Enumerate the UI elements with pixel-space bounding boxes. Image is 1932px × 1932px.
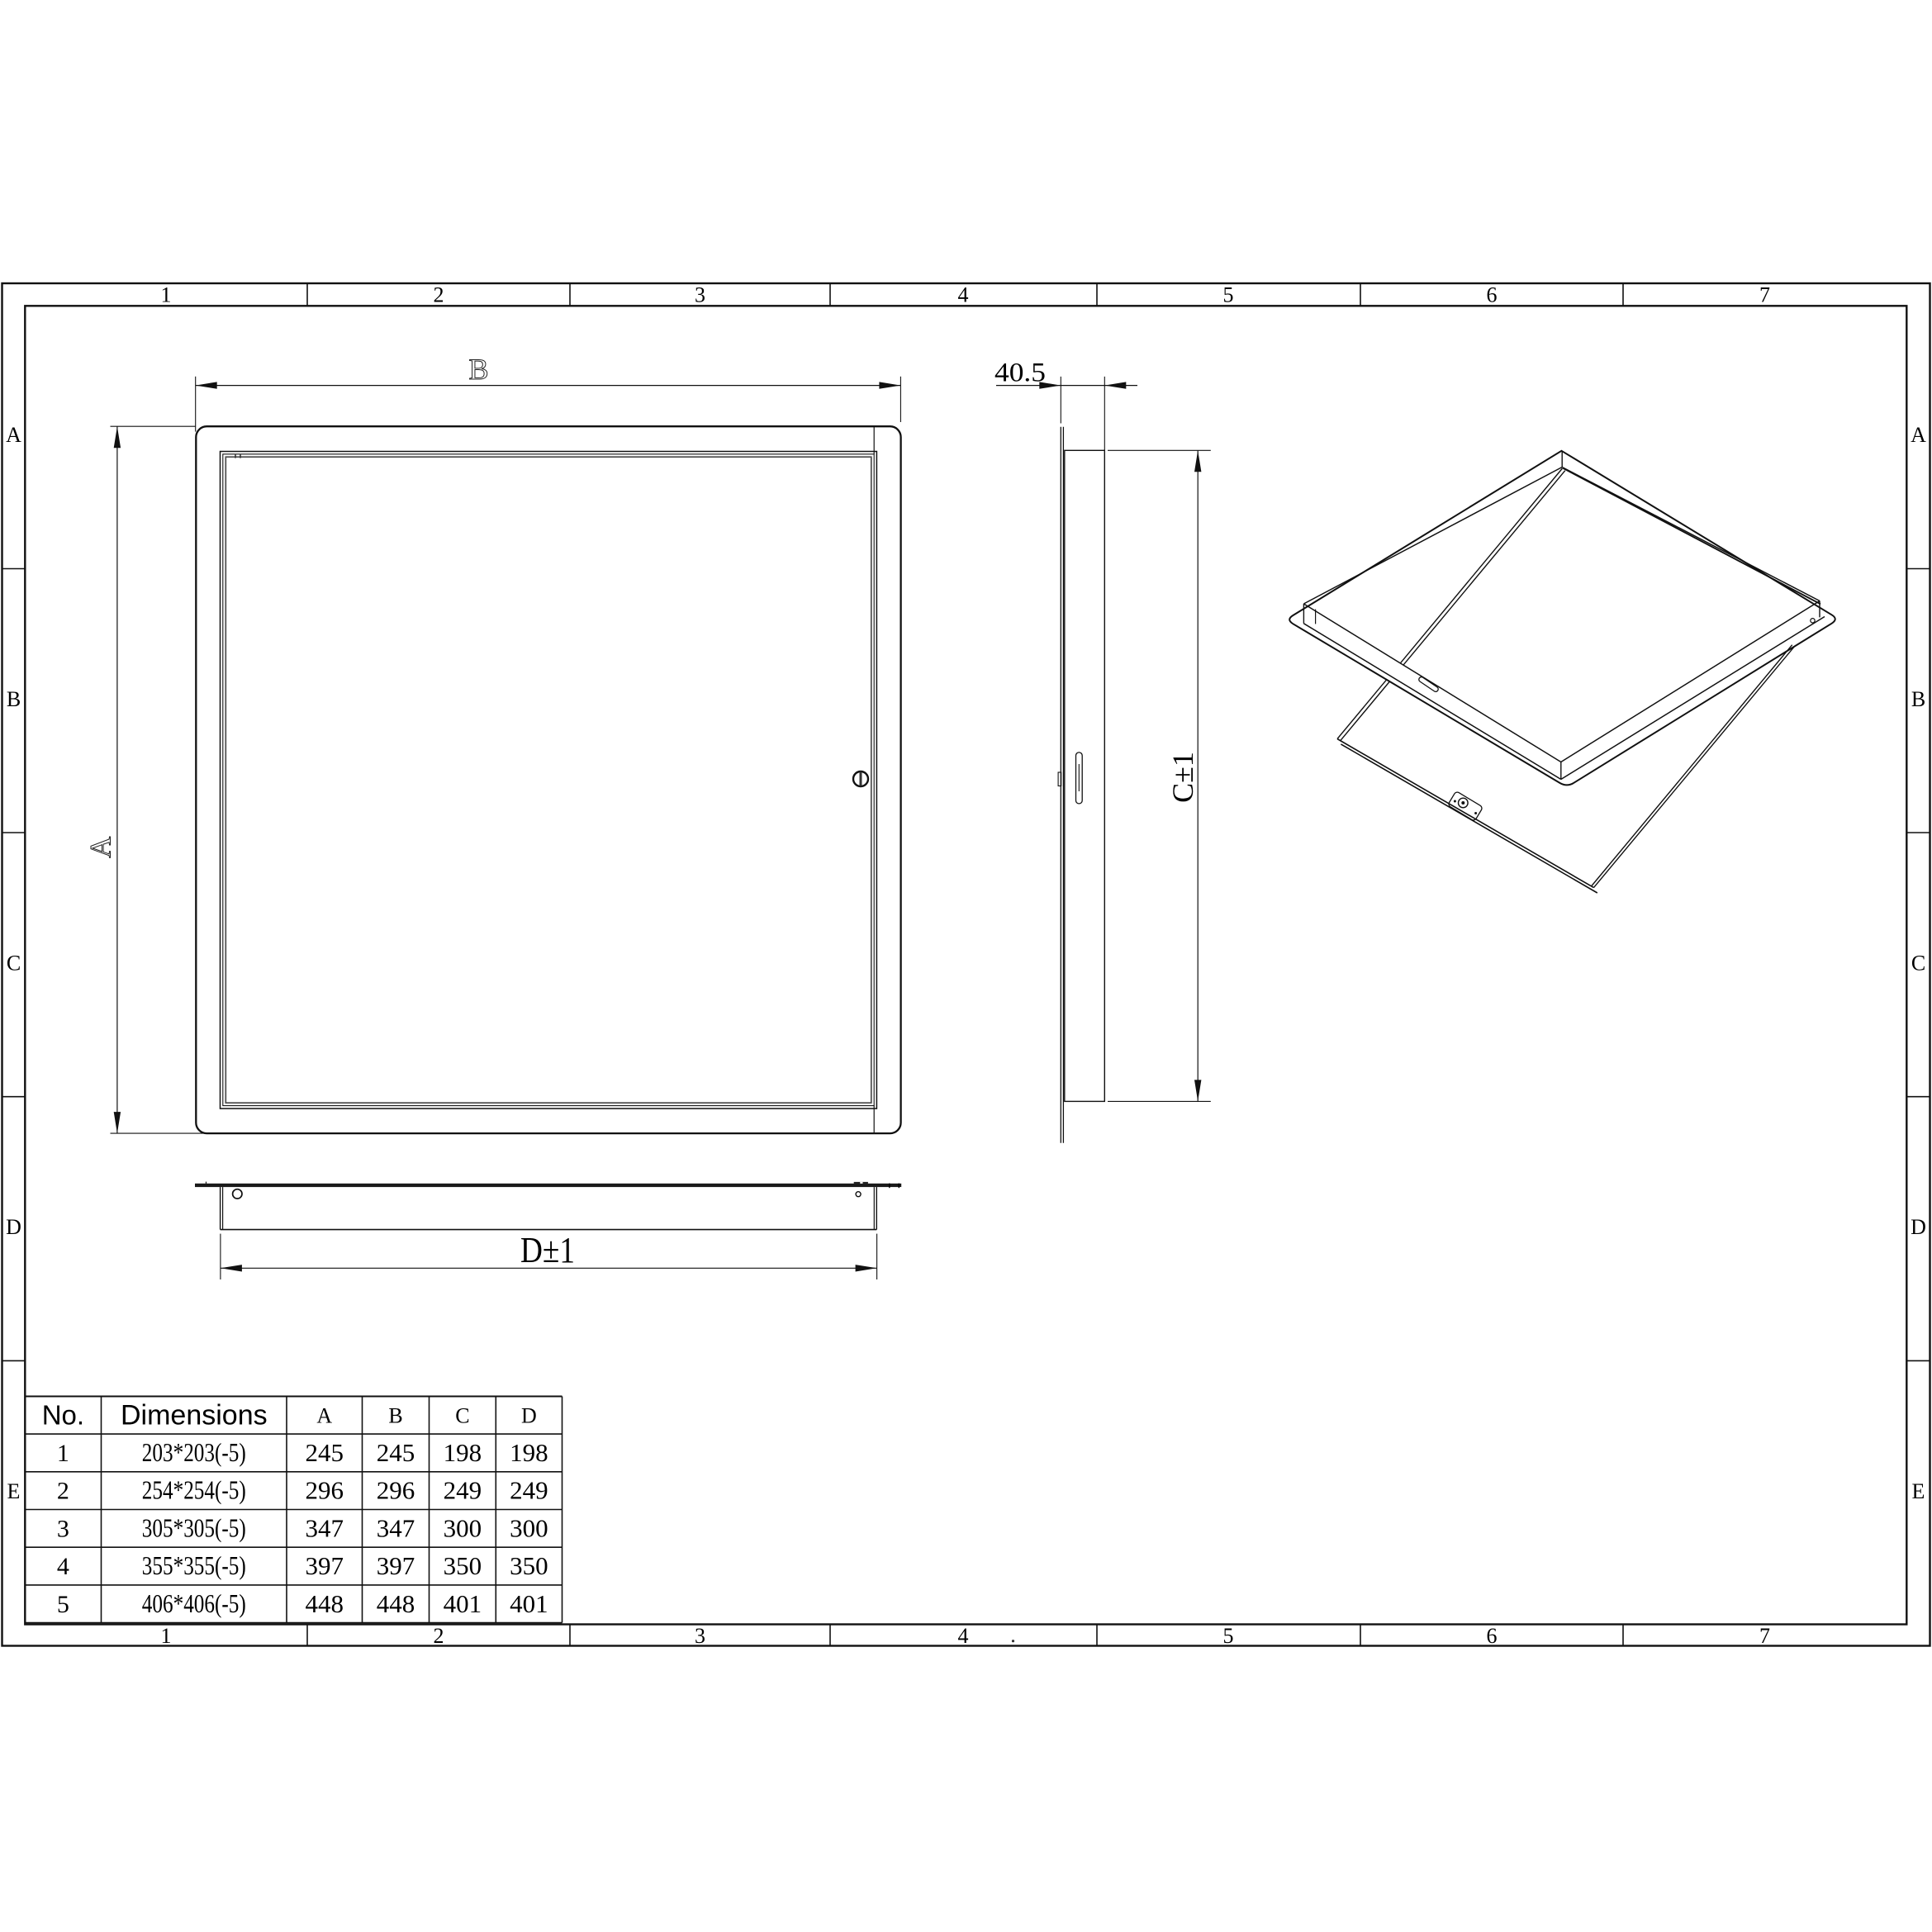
svg-text:6: 6 [1487, 283, 1498, 307]
svg-text:B: B [388, 1403, 402, 1427]
svg-text:A: A [6, 423, 21, 447]
svg-text:E: E [1912, 1479, 1925, 1503]
svg-text:2: 2 [57, 1478, 69, 1505]
svg-text:249: 249 [510, 1476, 548, 1505]
svg-text:350: 350 [444, 1551, 482, 1580]
svg-text:Dimensions: Dimensions [121, 1399, 268, 1431]
svg-text:249: 249 [444, 1476, 482, 1505]
svg-text:D: D [521, 1403, 537, 1427]
svg-text:198: 198 [444, 1438, 482, 1467]
svg-text:5: 5 [1223, 1624, 1234, 1648]
svg-text:D: D [6, 1215, 21, 1239]
svg-text:C: C [1911, 952, 1925, 975]
svg-text:254*254(-5): 254*254(-5) [142, 1475, 246, 1505]
svg-text:E: E [7, 1479, 21, 1503]
svg-text:448: 448 [377, 1589, 415, 1618]
svg-text:D±1: D±1 [520, 1230, 575, 1270]
svg-text:2: 2 [434, 283, 444, 307]
svg-text:203*203(-5): 203*203(-5) [142, 1437, 246, 1467]
svg-text:305*305(-5): 305*305(-5) [142, 1512, 246, 1542]
svg-text:3: 3 [57, 1515, 69, 1542]
svg-text:296: 296 [306, 1476, 344, 1505]
svg-text:245: 245 [306, 1438, 344, 1467]
svg-text:401: 401 [510, 1589, 548, 1618]
svg-text:347: 347 [377, 1513, 415, 1542]
svg-text:350: 350 [510, 1551, 548, 1580]
svg-text:448: 448 [306, 1589, 344, 1618]
svg-text:3: 3 [695, 1624, 705, 1648]
svg-text:A: A [84, 837, 117, 858]
svg-text:A: A [316, 1403, 332, 1427]
svg-text:C±1: C±1 [1166, 752, 1199, 803]
svg-text:2: 2 [434, 1624, 444, 1648]
svg-text:4: 4 [958, 1624, 969, 1648]
svg-text:6: 6 [1487, 1624, 1498, 1648]
svg-text:4: 4 [57, 1553, 69, 1580]
svg-text:7: 7 [1759, 283, 1770, 307]
svg-text:397: 397 [377, 1551, 415, 1580]
svg-text:300: 300 [510, 1513, 548, 1542]
svg-text:C: C [455, 1403, 469, 1427]
svg-text:355*355(-5): 355*355(-5) [142, 1550, 246, 1580]
svg-text:B: B [1911, 687, 1925, 711]
svg-text:1: 1 [161, 283, 172, 307]
svg-text:A: A [1911, 423, 1926, 447]
svg-text:B: B [468, 353, 488, 386]
svg-text:D: D [1911, 1215, 1926, 1239]
svg-text:1: 1 [57, 1440, 69, 1467]
svg-text:397: 397 [306, 1551, 344, 1580]
svg-text:296: 296 [377, 1476, 415, 1505]
svg-text:5: 5 [1223, 283, 1234, 307]
svg-text:1: 1 [161, 1624, 172, 1648]
svg-text:401: 401 [444, 1589, 482, 1618]
svg-text:245: 245 [377, 1438, 415, 1467]
svg-text:C: C [7, 952, 21, 975]
svg-text:3: 3 [695, 283, 705, 307]
svg-text:300: 300 [444, 1513, 482, 1542]
svg-text:198: 198 [510, 1438, 548, 1467]
svg-text:5: 5 [57, 1591, 69, 1618]
svg-text:406*406(-5): 406*406(-5) [142, 1588, 246, 1618]
svg-text:347: 347 [306, 1513, 344, 1542]
svg-text:No.: No. [42, 1399, 84, 1430]
svg-text:4: 4 [958, 283, 969, 307]
svg-text:40.5: 40.5 [994, 358, 1046, 388]
svg-text:7: 7 [1759, 1624, 1770, 1648]
svg-text:B: B [7, 687, 21, 711]
